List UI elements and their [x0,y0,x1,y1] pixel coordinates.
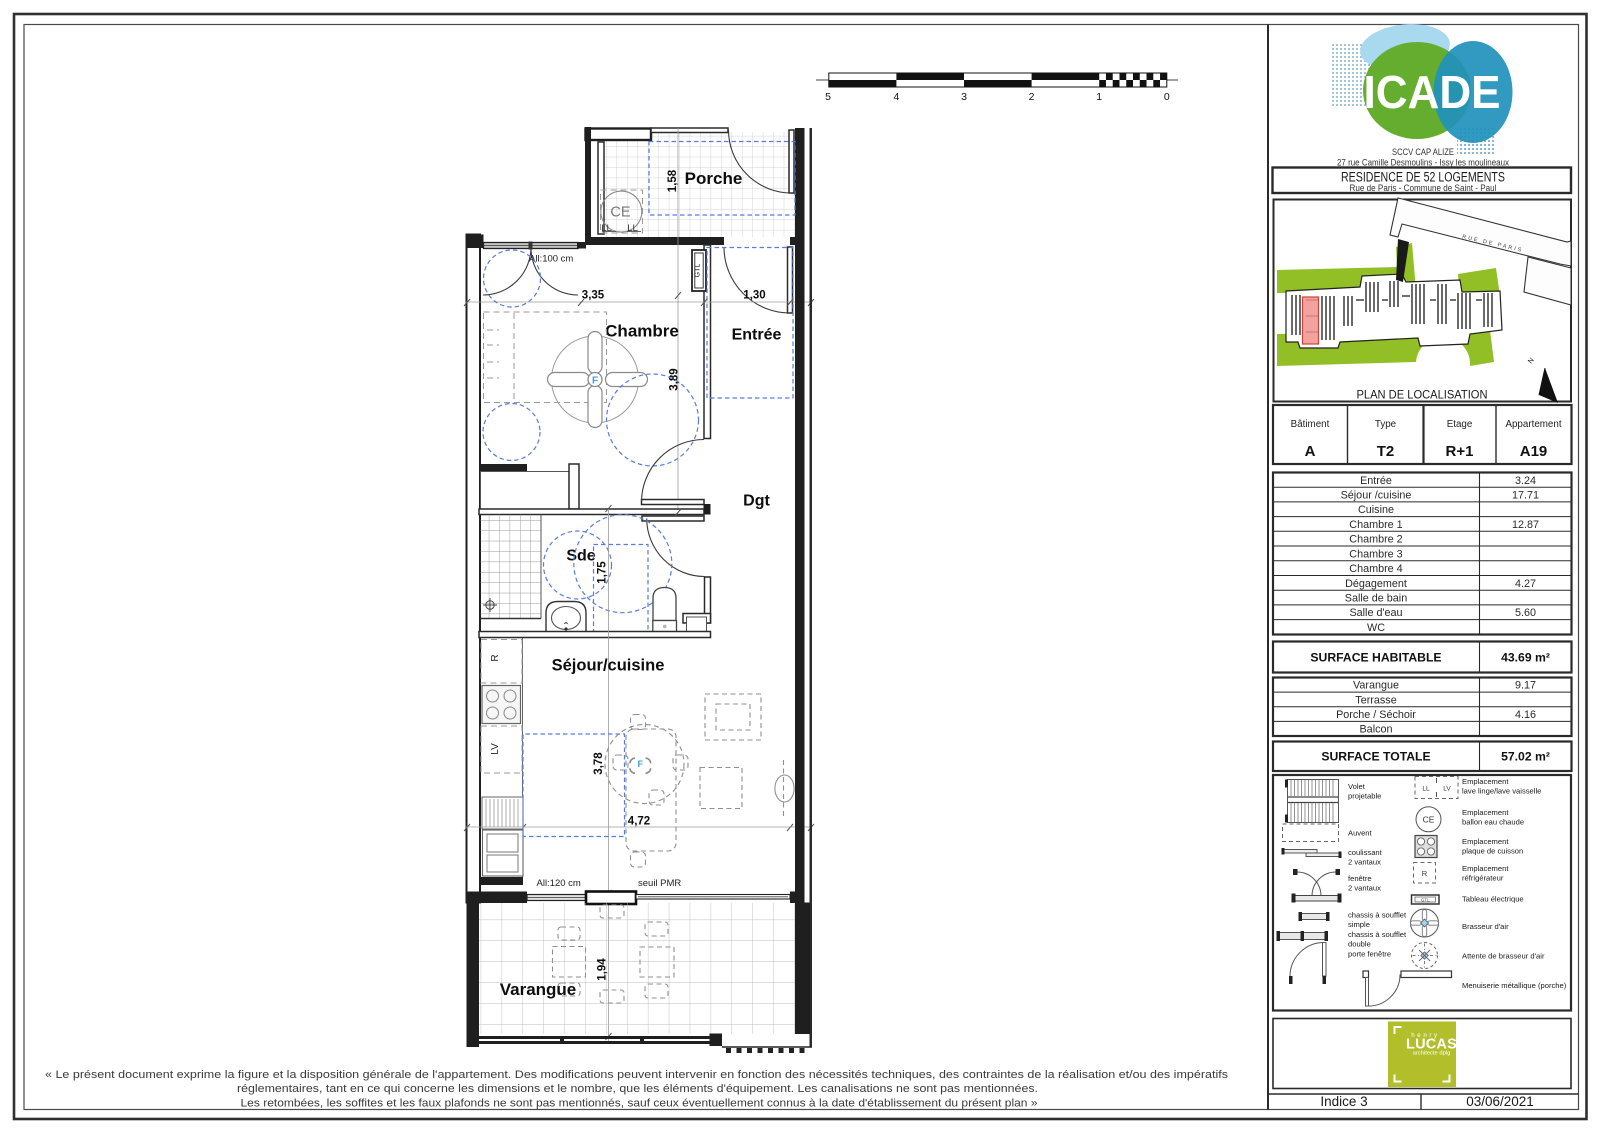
svg-text:R: R [1422,869,1428,878]
svg-text:Balcon: Balcon [1359,724,1392,736]
svg-text:Type: Type [1375,419,1397,430]
svg-text:3,89: 3,89 [669,368,681,390]
svg-text:A19: A19 [1520,443,1548,460]
svg-text:1,30: 1,30 [743,290,765,302]
svg-text:Menuiserie métallique (porche): Menuiserie métallique (porche) [1462,981,1567,990]
svg-text:F: F [638,759,644,769]
svg-text:ballon eau chaude: ballon eau chaude [1462,818,1524,827]
svg-text:LV: LV [490,743,501,755]
svg-text:Emplacement: Emplacement [1462,837,1509,846]
svg-text:1,94: 1,94 [597,958,609,981]
svg-text:GTL: GTL [1421,898,1430,903]
svg-text:fenêtre: fenêtre [1348,874,1372,883]
svg-text:Cuisine: Cuisine [1358,504,1394,516]
svg-text:0: 0 [1164,91,1170,103]
svg-text:03/06/2021: 03/06/2021 [1466,1094,1534,1109]
svg-text:3.24: 3.24 [1515,475,1536,487]
svg-text:57.02 m²: 57.02 m² [1501,750,1550,764]
svg-text:Emplacement: Emplacement [1462,808,1509,817]
svg-text:porte fenêtre: porte fenêtre [1348,950,1391,959]
svg-text:GTL: GTL [695,264,702,278]
svg-text:Chambre 4: Chambre 4 [1349,563,1402,575]
svg-text:Etage: Etage [1447,419,1473,430]
svg-text:3,35: 3,35 [582,290,605,302]
svg-text:réglementaires, tant en ce qui: réglementaires, tant en ce qui concerne … [237,1083,1038,1095]
svg-text:seuil PMR: seuil PMR [638,878,681,889]
svg-text:1: 1 [1096,91,1102,103]
svg-text:Porche: Porche [685,169,743,188]
svg-text:Chambre: Chambre [605,322,679,341]
svg-text:Chambre 1: Chambre 1 [1349,519,1402,531]
svg-text:A: A [1305,443,1316,460]
svg-text:lave linge/lave vaisselle: lave linge/lave vaisselle [1462,787,1541,796]
svg-text:5: 5 [825,91,831,103]
svg-text:architecte dplg: architecte dplg [1413,1051,1451,1057]
svg-text:Séjour /cuisine: Séjour /cuisine [1341,490,1412,502]
svg-text:coulissant: coulissant [1348,848,1383,857]
svg-text:2: 2 [1029,91,1035,103]
svg-text:Salle d'eau: Salle d'eau [1349,607,1402,619]
svg-text:Dgt: Dgt [743,493,770,510]
svg-text:Indice 3: Indice 3 [1320,1094,1367,1109]
svg-text:LL: LL [627,223,638,234]
svg-text:All:120 cm: All:120 cm [537,878,581,889]
svg-text:Varangue: Varangue [1353,680,1399,692]
svg-text:Emplacement: Emplacement [1462,777,1509,786]
svg-text:CE: CE [610,205,630,221]
svg-text:plaque de cuisson: plaque de cuisson [1462,847,1523,856]
svg-text:4.16: 4.16 [1515,709,1536,721]
svg-text:9.17: 9.17 [1515,680,1536,692]
svg-text:LL: LL [601,223,612,234]
svg-text:Auvent: Auvent [1348,829,1373,838]
svg-text:SCCV CAP ALIZE: SCCV CAP ALIZE [1392,147,1454,157]
svg-text:Terrasse: Terrasse [1355,694,1396,706]
svg-text:CE: CE [1423,814,1435,824]
svg-text:Entrée: Entrée [1360,475,1392,487]
svg-text:Brasseur d'air: Brasseur d'air [1462,922,1509,931]
svg-text:R: R [490,654,501,661]
svg-text:SURFACE HABITABLE: SURFACE HABITABLE [1310,651,1441,665]
svg-text:Salle de bain: Salle de bain [1345,593,1407,605]
svg-text:Séjour/cuisine: Séjour/cuisine [552,657,665,675]
svg-text:Attente de brasseur d'air: Attente de brasseur d'air [1462,952,1545,961]
svg-text:Tableau électrique: Tableau électrique [1462,895,1524,904]
svg-text:Chambre 3: Chambre 3 [1349,548,1402,560]
svg-text:All:100 cm: All:100 cm [529,254,573,265]
svg-text:1,75: 1,75 [597,561,609,584]
svg-text:simple: simple [1348,920,1370,929]
svg-text:1,58: 1,58 [667,169,679,192]
svg-text:chassis à soufflet: chassis à soufflet [1348,930,1407,939]
svg-text:SURFACE TOTALE: SURFACE TOTALE [1321,750,1430,764]
svg-text:ICADE: ICADE [1364,66,1501,118]
svg-text:Entrée: Entrée [732,327,782,344]
svg-text:4: 4 [893,91,899,103]
svg-text:double: double [1348,940,1371,949]
svg-text:Les retombées, les soffites et: Les retombées, les soffites et les faux … [241,1098,1038,1110]
svg-text:chassis à soufflet: chassis à soufflet [1348,911,1407,920]
svg-text:2 vantaux: 2 vantaux [1348,858,1381,867]
svg-text:F: F [592,376,598,387]
svg-text:2 vantaux: 2 vantaux [1348,884,1381,893]
svg-text:43.69 m²: 43.69 m² [1501,651,1550,665]
svg-text:LV: LV [1443,786,1451,793]
svg-text:WC: WC [1367,622,1385,634]
svg-text:Volet: Volet [1348,782,1366,791]
svg-text:Sde: Sde [566,548,595,565]
svg-text:Bâtiment: Bâtiment [1291,419,1330,430]
svg-text:12.87: 12.87 [1512,519,1539,531]
svg-text:Varangue: Varangue [500,980,577,999]
svg-text:PLAN DE LOCALISATION: PLAN DE LOCALISATION [1357,390,1488,402]
svg-text:Porche / Séchoir: Porche / Séchoir [1336,709,1416,721]
svg-text:4.27: 4.27 [1515,578,1536,590]
svg-text:Chambre 2: Chambre 2 [1349,534,1402,546]
svg-text:3,78: 3,78 [593,752,605,775]
svg-text:réfrigérateur: réfrigérateur [1462,874,1504,883]
svg-text:3: 3 [961,91,967,103]
svg-text:LL: LL [1422,786,1430,793]
svg-text:« Le présent document exprime: « Le présent document exprime la figure … [45,1069,1229,1081]
svg-text:5.60: 5.60 [1515,607,1536,619]
svg-text:4,72: 4,72 [628,816,650,828]
svg-text:T2: T2 [1377,443,1395,460]
svg-text:17.71: 17.71 [1512,490,1539,502]
svg-text:Dégagement: Dégagement [1345,578,1407,590]
svg-text:Appartement: Appartement [1505,419,1561,430]
svg-text:Rue de Paris - Commune de Sain: Rue de Paris - Commune de Saint - Paul [1350,183,1497,193]
svg-text:R+1: R+1 [1446,443,1474,460]
svg-text:27 rue Camille Desmoulins - Is: 27 rue Camille Desmoulins - Issy les mou… [1337,158,1509,168]
svg-text:projetable: projetable [1348,792,1381,801]
svg-text:Emplacement: Emplacement [1462,864,1509,873]
